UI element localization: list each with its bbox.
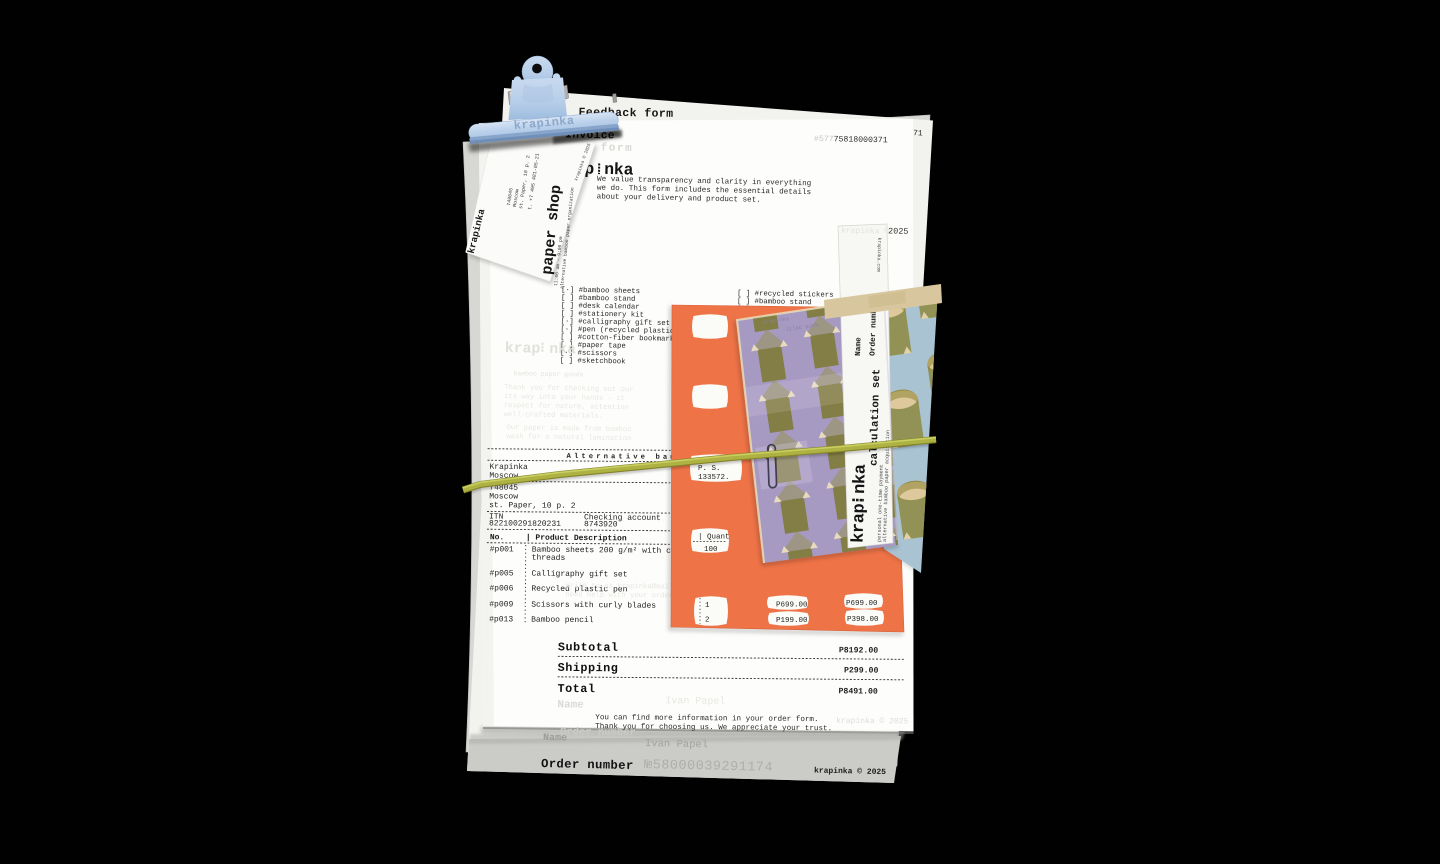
svg-text:822100291820231: 822100291820231 [489,519,561,529]
svg-text:#p006: #p006 [489,584,513,593]
svg-text:threads: threads [532,554,566,563]
svg-text:form: form [601,142,634,155]
svg-text:P8192.00: P8192.00 [839,646,878,655]
svg-text:Calligraphy gift set: Calligraphy gift set [531,570,627,580]
svg-text:#p005: #p005 [489,569,513,578]
svg-text:#p001: #p001 [490,545,514,554]
svg-text:[ ] #sketchbook: [ ] #sketchbook [560,357,626,366]
svg-text:Ivan Papel: Ivan Papel [645,738,708,751]
svg-text:71: 71 [913,129,923,139]
svg-text:#p013: #p013 [489,615,513,624]
svg-text:st. Paper, 10 p. 2: st. Paper, 10 p. 2 [489,501,576,511]
svg-text:1: 1 [705,602,710,610]
svg-text:nka: nka [851,464,871,494]
svg-text:P. S.: P. S. [698,465,721,473]
svg-text:#57775818000371: #57775818000371 [814,135,888,146]
svg-text:Shipping: Shipping [558,661,619,676]
svg-text:No.: No. [490,533,504,542]
svg-text:P398.00: P398.00 [847,616,879,624]
svg-text:krapinka © 2025: krapinka © 2025 [814,767,886,778]
svg-text:| Product Description: | Product Description [526,534,627,544]
svg-text:P299.00: P299.00 [844,666,879,675]
svg-text:Subtotal: Subtotal [558,640,619,655]
svg-text:Ivan Papel: Ivan Papel [665,695,725,708]
svg-text:Order number: Order number [541,757,634,773]
svg-text:| Quant: | Quant [698,534,730,542]
svg-text:8743920: 8743920 [584,520,618,529]
svg-text:№58000039291174: №58000039291174 [644,758,773,776]
svg-text:Name: Name [557,699,584,711]
svg-text:P199.00: P199.00 [776,617,808,625]
svg-text:P699.00: P699.00 [846,600,878,608]
svg-text:need help with your order: need help with your order [565,591,673,600]
svg-text:133572.: 133572. [698,474,730,482]
svg-text:Bamboo pencil: Bamboo pencil [531,616,594,626]
svg-text:Scissors with curly blades: Scissors with curly blades [531,601,656,611]
svg-text:krapinka ©: krapinka © [841,227,889,237]
svg-text:2025: 2025 [888,226,909,236]
svg-text:krapinka © 2025: krapinka © 2025 [836,717,908,727]
svg-text:#p009: #p009 [489,600,513,609]
svg-text:Order number: Order number [560,726,636,739]
svg-text:krap: krap [505,341,541,358]
svg-text:2: 2 [705,617,710,625]
svg-text:100: 100 [704,546,718,554]
svg-text:Total: Total [557,682,595,696]
svg-text:bamboo paper goods: bamboo paper goods [513,370,583,378]
svg-text:krap: krap [850,503,870,543]
svg-text:P8491.00: P8491.00 [838,687,877,696]
svg-text:krapinka.com: krapinka.com [875,237,882,272]
svg-text:P699.00: P699.00 [776,602,808,610]
svg-text:Name: Name [855,337,864,356]
svg-text:nka: nka [549,342,576,358]
